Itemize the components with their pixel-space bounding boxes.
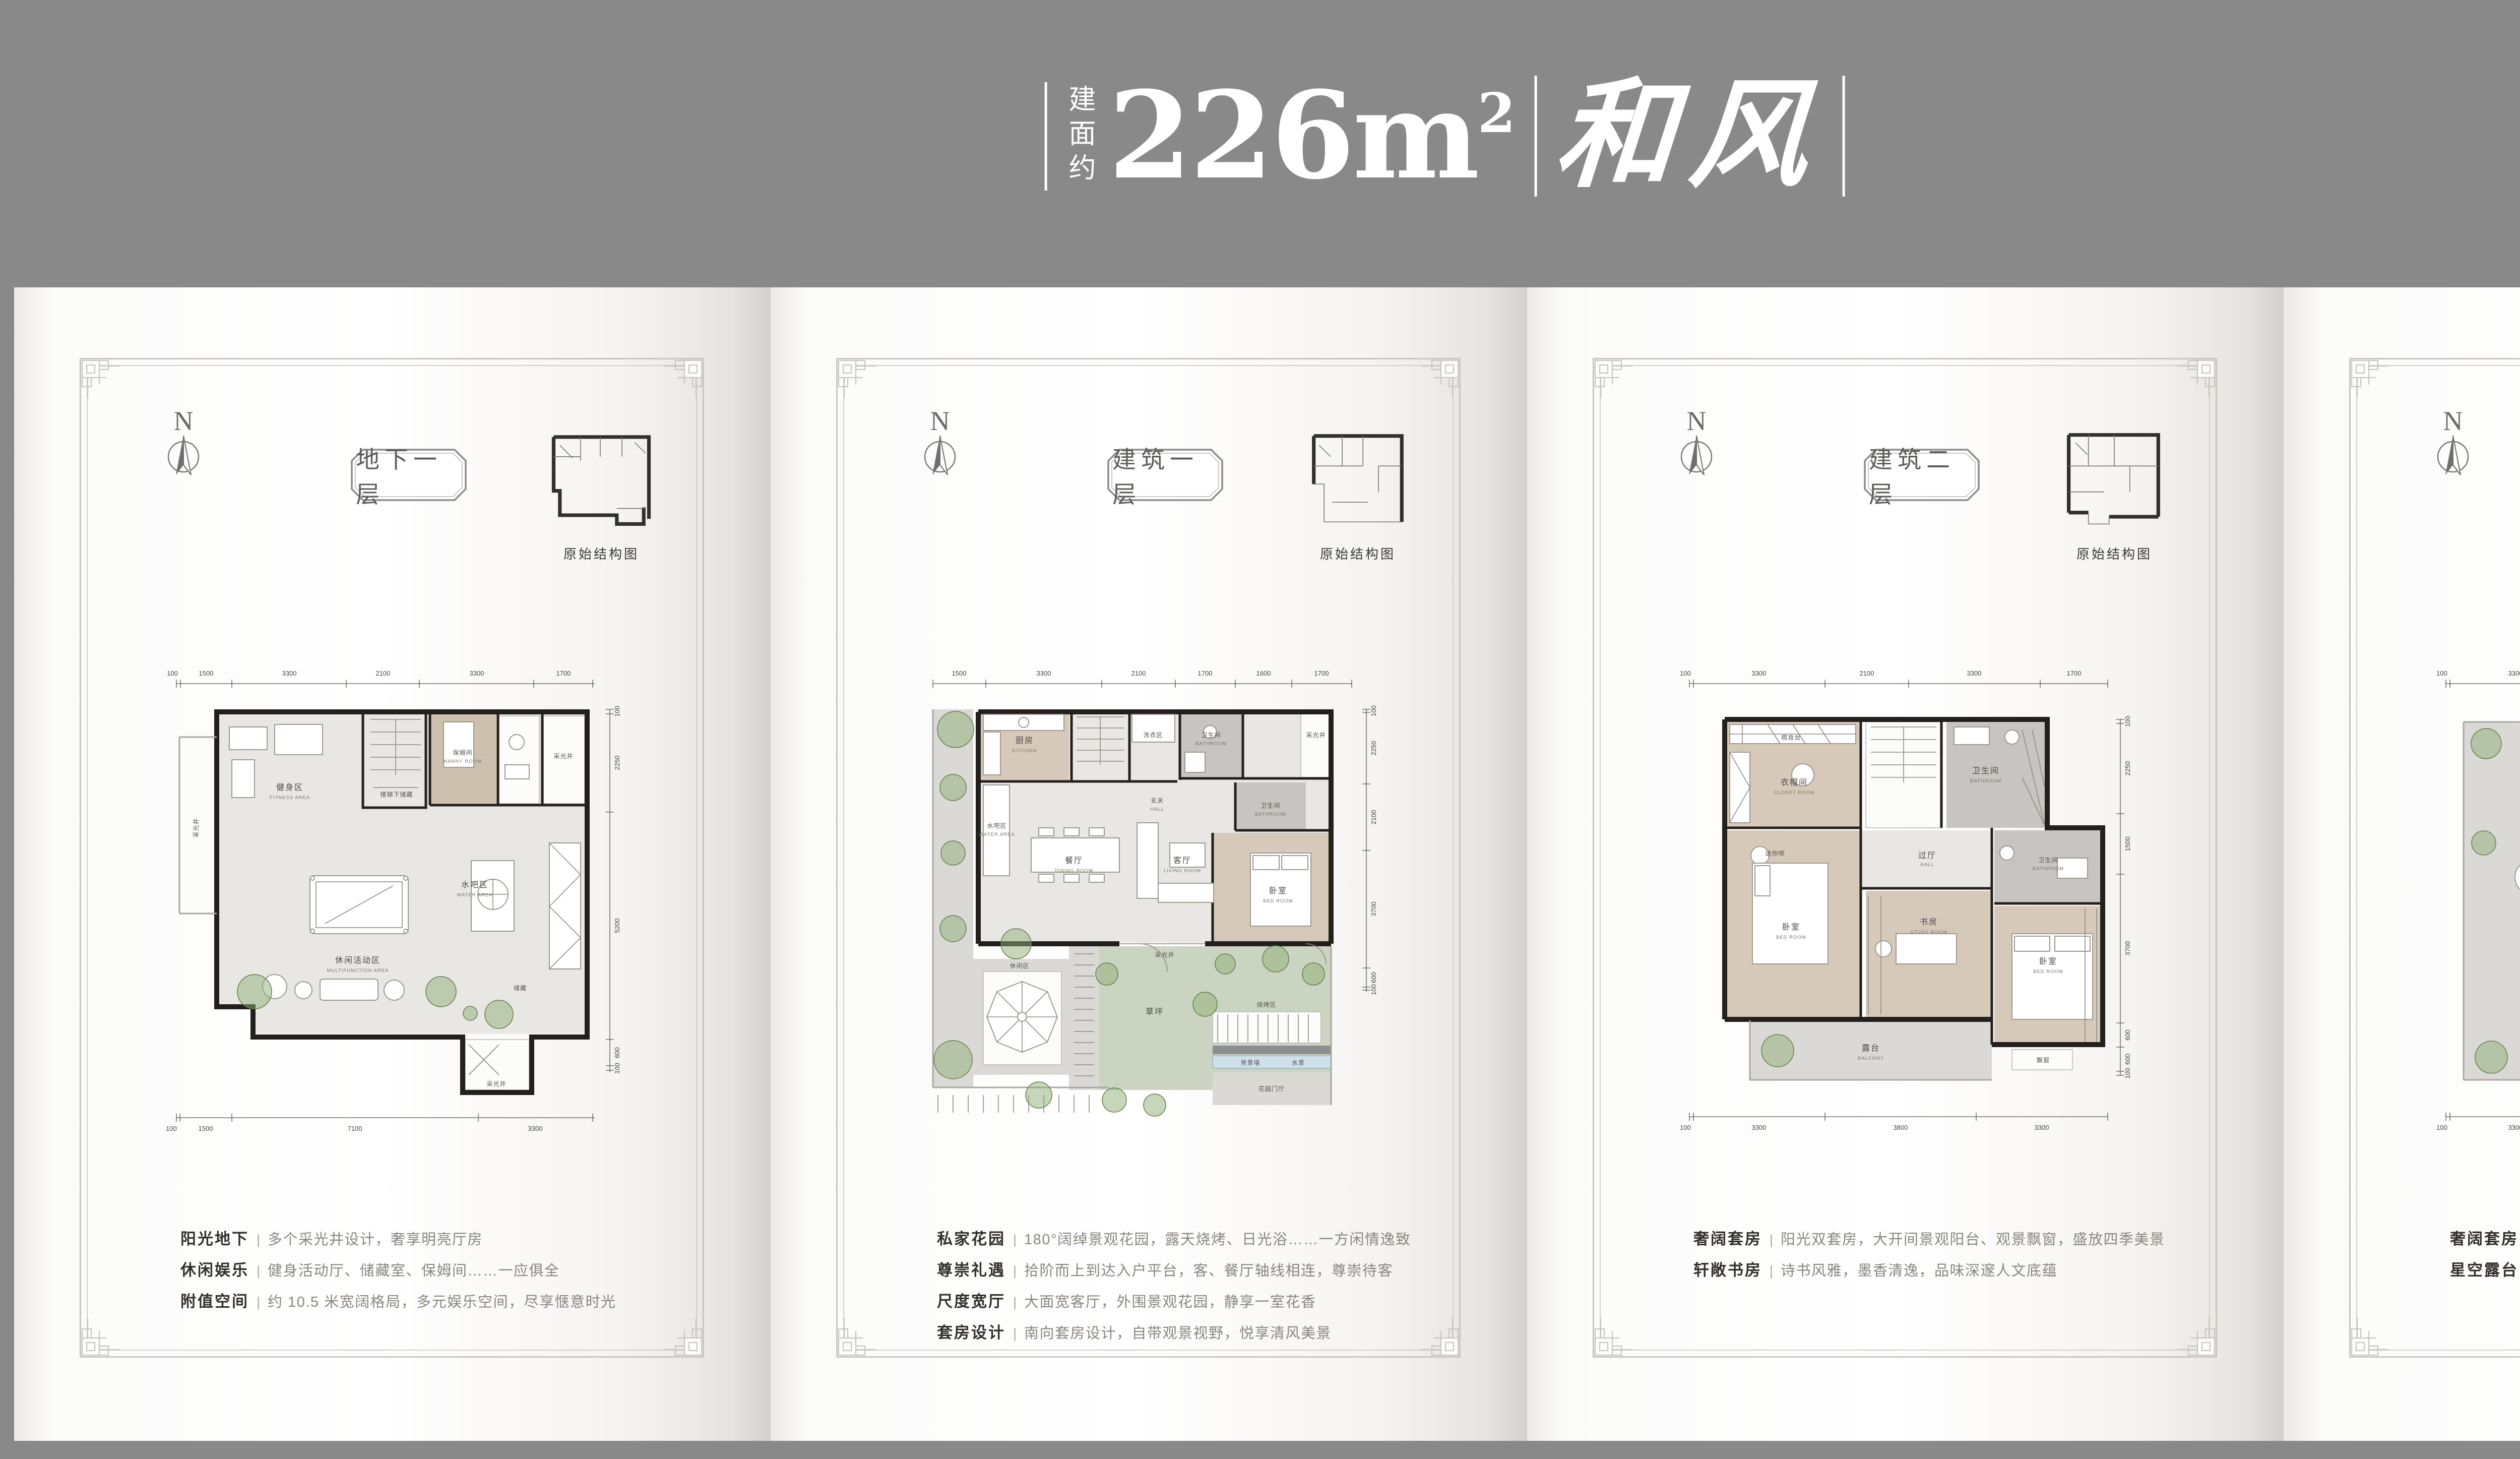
frame-corner-ornament: [77, 1318, 119, 1360]
dimension-label: 1700: [1314, 670, 1329, 677]
room-label: 卫生间: [1972, 766, 1999, 775]
feature-separator: |: [257, 1232, 260, 1248]
room-label: 采光井: [1306, 732, 1326, 739]
original-structure-inset: 原始结构图: [2057, 430, 2171, 563]
feature-row: 奢阔套房 | 大开间主卧套房，私享衣帽间、独立卫浴、观景书房，尽显尊荣: [2450, 1226, 2520, 1249]
feature-row: 尊崇礼遇 | 拾阶而上到达入户平台，客、餐厅轴线相连，尊崇待客: [937, 1257, 1522, 1280]
feature-list: 私家花园 | 180°阔绰景观花园，露天烧烤、日光浴……一方闲情逸致 尊崇礼遇 …: [937, 1226, 1522, 1351]
room-label-en: LIVING ROOM: [1164, 868, 1201, 874]
dimension-label: 3300: [282, 670, 297, 677]
dimension-label: 1500: [199, 1125, 213, 1132]
header-band: 建面约 226m2 和风: [0, 0, 2520, 287]
original-structure-mini-plan: [544, 430, 658, 528]
frame-corner-ornament: [834, 355, 876, 398]
dimension-label: 1600: [1256, 670, 1271, 677]
feature-desc: 诗书风雅，墨香清逸，品味深邃人文底蕴: [1781, 1259, 2057, 1280]
room-label: 楼梯下储藏: [380, 791, 413, 798]
feature-desc: 阳光双套房，大开间景观阳台、观景飘窗，盛放四季美景: [1781, 1228, 2165, 1249]
floor-title: 地下一层: [351, 449, 467, 501]
dimension-label: 2100: [1131, 670, 1146, 677]
room-label-en: BED ROOM: [2033, 969, 2063, 975]
area-number: 226m2: [1108, 76, 1516, 196]
frame-corner-ornament: [2347, 1318, 2389, 1360]
feature-list: 奢阔套房 | 大开间主卧套房，私享衣帽间、独立卫浴、观景书房，尽显尊荣 星空露台…: [2450, 1226, 2520, 1289]
floor-fills: [2464, 722, 2520, 1080]
divider-bar: [1044, 82, 1047, 191]
feature-label: 星空露台: [2450, 1257, 2518, 1280]
frame-corner-ornament: [2177, 1318, 2220, 1360]
floor-plan-basement: 100 1500 3300 2100 3300 1700 100 2250 52…: [146, 661, 640, 1135]
feature-separator: |: [257, 1295, 260, 1310]
page-second-floor: N 建筑二层 原始结构图: [1527, 287, 2284, 1441]
feature-row: 星空露台 | 一把藤椅，品一杯香茗，宁静致远，浸润悠闲时光: [2450, 1257, 2520, 1280]
dimension-label: 100: [1370, 705, 1377, 716]
dimension-label: 3300: [1967, 670, 1982, 677]
dimension-label: 100: [1370, 984, 1377, 995]
dimension-label: 3300: [470, 670, 484, 677]
room-label-en: BATHROOM: [1255, 812, 1286, 817]
room-label: 保姆间: [453, 749, 472, 756]
frame-corner-ornament: [1590, 1318, 1632, 1360]
room-label: 烧烤区: [1256, 1001, 1276, 1008]
dimension-label: 3300: [1037, 670, 1051, 677]
floor-title: 建筑二层: [1864, 449, 1980, 501]
inset-label: 原始结构图: [544, 544, 658, 563]
feature-row: 阳光地下 | 多个采光井设计，奢享明亮厅房: [180, 1226, 765, 1249]
compass-north-icon: N: [917, 407, 963, 483]
dimension-label: 1700: [1198, 670, 1213, 677]
feature-list: 阳光地下 | 多个采光井设计，奢享明亮厅房 休闲娱乐 | 健身活动厅、储藏室、保…: [180, 1226, 765, 1320]
feature-label: 奢阔套房: [1693, 1226, 1762, 1249]
room-label-en: STUDY ROOM: [1910, 930, 1947, 935]
room-label: 卫生间: [1201, 732, 1221, 739]
room-label-en: BED ROOM: [1263, 898, 1293, 904]
room-label-en: BATHROOM: [1195, 741, 1227, 747]
compass-n-label: N: [2430, 407, 2476, 435]
feature-label: 尺度宽厅: [937, 1289, 1005, 1311]
original-structure-mini-plan: [2057, 430, 2171, 528]
feature-desc: 健身活动厅、储藏室、保姆间……一应俱全: [268, 1259, 560, 1280]
room-label: 采光井: [553, 753, 573, 760]
dimension-label: 100: [1680, 670, 1691, 677]
feature-row: 套房设计 | 南向套房设计，自带观景视野，悦享清风美景: [937, 1320, 1522, 1343]
room-label: 休闲活动区: [335, 956, 381, 965]
feature-row: 尺度宽厅 | 大面宽客厅，外围景观花园，静享一室花香: [937, 1289, 1522, 1311]
room-label: 过厅: [1918, 851, 1936, 860]
dimension-label: 600: [2124, 1054, 2131, 1065]
feature-label: 轩敞书房: [1693, 1257, 1762, 1280]
compass-arrow-icon: [1673, 435, 1720, 483]
dimension-label: 100: [2436, 1124, 2447, 1131]
dimension-label: 3700: [1370, 902, 1377, 917]
area-value: 226m: [1108, 66, 1478, 206]
compass-north-icon: N: [1673, 407, 1720, 483]
compass-arrow-icon: [2430, 435, 2476, 483]
dimension-label: 1500: [2124, 837, 2131, 852]
room-label: 草坪: [1146, 1007, 1164, 1016]
room-label-en: BALCONY: [1858, 1056, 1884, 1061]
room-label-en: MULTIFUNCTION AREA: [327, 968, 389, 974]
room-label: 健身区: [276, 783, 303, 792]
frame-corner-ornament: [1590, 355, 1632, 398]
feature-label: 奢阔套房: [2450, 1226, 2518, 1249]
dimension-label: 5200: [613, 919, 621, 933]
room-label-en: DINING ROOM: [1055, 868, 1093, 874]
frame-corner-ornament: [664, 355, 707, 398]
dimension-label: 600: [613, 1047, 621, 1058]
room-label: 水景: [1292, 1059, 1305, 1066]
area-superscript: 2: [1478, 82, 1516, 145]
compass-n-label: N: [1673, 407, 1720, 435]
frame-corner-ornament: [664, 1318, 707, 1360]
feature-desc: 多个采光井设计，奢享明亮厅房: [268, 1228, 483, 1249]
dimension-label: 100: [1680, 1124, 1691, 1131]
feature-separator: |: [1770, 1263, 1773, 1279]
feature-separator: |: [1013, 1295, 1017, 1310]
room-label: 卧室: [1782, 923, 1800, 932]
room-label: 衣帽间: [1781, 778, 1808, 787]
room-label: 飘窗: [2037, 1057, 2050, 1064]
original-structure-inset: 原始结构图: [544, 430, 658, 563]
feature-desc: 约 10.5 米宽阔格局，多元娱乐空间，尽享惬意时光: [268, 1290, 616, 1311]
feature-desc: 拾阶而上到达入户平台，客、餐厅轴线相连，尊崇待客: [1024, 1259, 1393, 1280]
frame-corner-ornament: [77, 355, 119, 398]
room-label: 餐厅: [1065, 856, 1083, 865]
room-label: 采光井: [486, 1080, 506, 1087]
dimension-label: 100: [2436, 670, 2447, 677]
feature-label: 附值空间: [180, 1289, 249, 1311]
room-label: 背景墙: [1240, 1059, 1260, 1066]
room-label-en: WATER AREA: [979, 832, 1015, 837]
compass-north-icon: N: [160, 407, 207, 483]
room-label: 厨房: [1016, 736, 1034, 745]
room-label-en: FITNESS AREA: [270, 795, 310, 801]
room-label-en: CLOSET ROOM: [1774, 790, 1814, 796]
dimension-label: 100: [166, 1125, 177, 1132]
inset-label: 原始结构图: [2057, 544, 2171, 563]
feature-label: 套房设计: [937, 1320, 1005, 1343]
dimension-label: 3800: [1894, 1124, 1908, 1131]
dimension-label: 1500: [199, 670, 214, 677]
trees: [1761, 1035, 1794, 1067]
room-label-en: BATHROOM: [2033, 866, 2064, 872]
room-label: 客厅: [1173, 856, 1191, 865]
room-label: 露台: [1862, 1044, 1880, 1053]
room-label-en: NANNY ROOM: [444, 759, 481, 764]
room-label-en: KITCHEN: [1013, 748, 1037, 754]
compass-north-icon: N: [2430, 407, 2476, 483]
feature-desc: 180°阔绰景观花园，露天烧烤、日光浴……一方闲情逸致: [1024, 1228, 1411, 1249]
feature-label: 阳光地下: [180, 1226, 249, 1249]
feature-separator: |: [1770, 1232, 1773, 1248]
room-label: 玄关: [1151, 797, 1164, 804]
dimension-label: 600: [1370, 972, 1377, 983]
feature-row: 轩敞书房 | 诗书风雅，墨香清逸，品味深邃人文底蕴: [1693, 1257, 2278, 1280]
compass-n-label: N: [917, 407, 963, 435]
dimension-label: 100: [613, 706, 621, 717]
dimension-label: 1500: [952, 670, 967, 677]
feature-desc: 大面宽客厅，外围景观花园，静享一室花香: [1024, 1290, 1316, 1311]
feature-row: 私家花园 | 180°阔绰景观花园，露天烧烤、日光浴……一方闲情逸致: [937, 1226, 1522, 1249]
room-label: 休闲区: [1010, 962, 1029, 969]
page-first-floor: N 建筑一层 原始结构图: [771, 287, 1527, 1441]
room-label: 采光井: [193, 818, 200, 837]
dimension-label: 100: [167, 670, 178, 677]
dimension-label: 2250: [1370, 741, 1377, 756]
room-label: 储藏: [514, 984, 527, 992]
dimension-label: 1700: [2067, 670, 2082, 677]
room-label: 水吧区: [461, 880, 488, 889]
frame-corner-ornament: [1421, 355, 1463, 398]
floor-title-badge: 建筑一层: [1107, 449, 1223, 501]
dimension-label: 3300: [1752, 1124, 1767, 1131]
room-label: 卧室: [1269, 886, 1287, 895]
feature-separator: |: [1013, 1326, 1017, 1342]
garden-umbrella: [983, 971, 1061, 1065]
dimension-label: 2100: [1860, 670, 1874, 677]
room-label: 采光井: [1155, 951, 1174, 958]
page-third-floor: N 建筑三层 原始结构图: [2284, 287, 2520, 1441]
original-structure-inset: 原始结构图: [1301, 430, 1415, 563]
floor-title: 建筑一层: [1107, 449, 1223, 501]
footer-band: [0, 1441, 2520, 1459]
floor-title-badge: 地下一层: [351, 449, 467, 501]
room-label: 卫生间: [2038, 857, 2058, 864]
feature-label: 尊崇礼遇: [937, 1257, 1005, 1280]
dimension-label: 100: [613, 1063, 621, 1074]
floor-plan-second: 100 3300 2100 3300 1700 100 2250 1500 37…: [1659, 661, 2153, 1135]
room-label-en: HALL: [1150, 807, 1164, 812]
floor-title-badge: 建筑二层: [1864, 449, 1980, 501]
feature-label: 休闲娱乐: [180, 1257, 249, 1280]
divider-bar: [1535, 76, 1537, 197]
dimension-label: 100: [2124, 1068, 2131, 1079]
room-label: 书房: [1920, 918, 1938, 927]
feature-separator: |: [1013, 1263, 1017, 1279]
page-basement: N 地下一层 原始结构图: [14, 287, 771, 1441]
original-structure-mini-plan: [1301, 430, 1415, 528]
dimension-label: 3300: [1752, 670, 1767, 677]
room-label: 卫生间: [1261, 802, 1280, 809]
frame-corner-ornament: [2177, 355, 2220, 398]
project-name: 和风: [1552, 77, 1828, 196]
compass-n-label: N: [160, 407, 207, 435]
room-label: 卧室: [2039, 957, 2057, 966]
feature-label: 私家花园: [937, 1226, 1005, 1249]
floor-plan-third: 100 3300 2100 3300 1700 100 2250 2000 32…: [2416, 661, 2520, 1135]
feature-desc: 南向套房设计，自带观景视野，悦享清风美景: [1024, 1321, 1332, 1343]
dimension-label: 2100: [376, 670, 391, 677]
feature-row: 奢阔套房 | 阳光双套房，大开间景观阳台、观景飘窗，盛放四季美景: [1693, 1226, 2278, 1249]
room-label-en: BATHROOM: [1970, 778, 2001, 784]
room-label: 花园门厅: [1258, 1085, 1285, 1092]
feature-separator: |: [257, 1263, 260, 1279]
dimension-label: 3300: [2508, 670, 2520, 677]
dimension-label: 7100: [348, 1125, 362, 1132]
dimension-label: 3300: [2508, 1124, 2520, 1131]
room-label: 梳妆台: [1781, 734, 1801, 741]
dimension-label: 1700: [556, 670, 571, 677]
room-label-en: BED ROOM: [1776, 935, 1806, 940]
frame-corner-ornament: [2347, 355, 2389, 398]
compass-arrow-icon: [160, 435, 207, 483]
brochure-sheet: N 地下一层 原始结构图: [14, 287, 2520, 1441]
dimension-label: 3700: [2124, 941, 2131, 956]
dimension-label: 2250: [613, 756, 621, 770]
inset-label: 原始结构图: [1301, 544, 1415, 563]
dimension-label: 3300: [528, 1125, 543, 1132]
room-label: 水吧区: [987, 822, 1006, 829]
dimension-label: 2100: [1370, 810, 1377, 825]
feature-separator: |: [1013, 1232, 1017, 1248]
compass-arrow-icon: [917, 435, 963, 483]
feature-list: 奢阔套房 | 阳光双套房，大开间景观阳台、观景飘窗，盛放四季美景 轩敞书房 | …: [1693, 1226, 2278, 1289]
dimension-label: 600: [2124, 1029, 2131, 1041]
dimension-label: 3300: [2035, 1124, 2049, 1131]
floor-plan-first: 1500 3300 2100 1700 1600 1700 100 2250 2…: [903, 661, 1397, 1135]
dimension-label: 100: [2124, 716, 2131, 727]
header-title: 建面约 226m2 和风: [1044, 76, 1900, 197]
frame-corner-ornament: [834, 1318, 876, 1360]
room-label: 迷你吧: [1765, 850, 1785, 857]
room-label: 洗衣区: [1143, 731, 1163, 739]
divider-bar: [1843, 76, 1845, 197]
feature-row: 附值空间 | 约 10.5 米宽阔格局，多元娱乐空间，尽享惬意时光: [180, 1289, 765, 1311]
feature-row: 休闲娱乐 | 健身活动厅、储藏室、保姆间……一应俱全: [180, 1257, 765, 1280]
room-label-en: WATER AREA: [457, 892, 492, 898]
area-prefix: 建面约: [1066, 85, 1093, 188]
room-label-en: HALL: [1920, 862, 1934, 868]
dimension-label: 2250: [2124, 761, 2131, 776]
